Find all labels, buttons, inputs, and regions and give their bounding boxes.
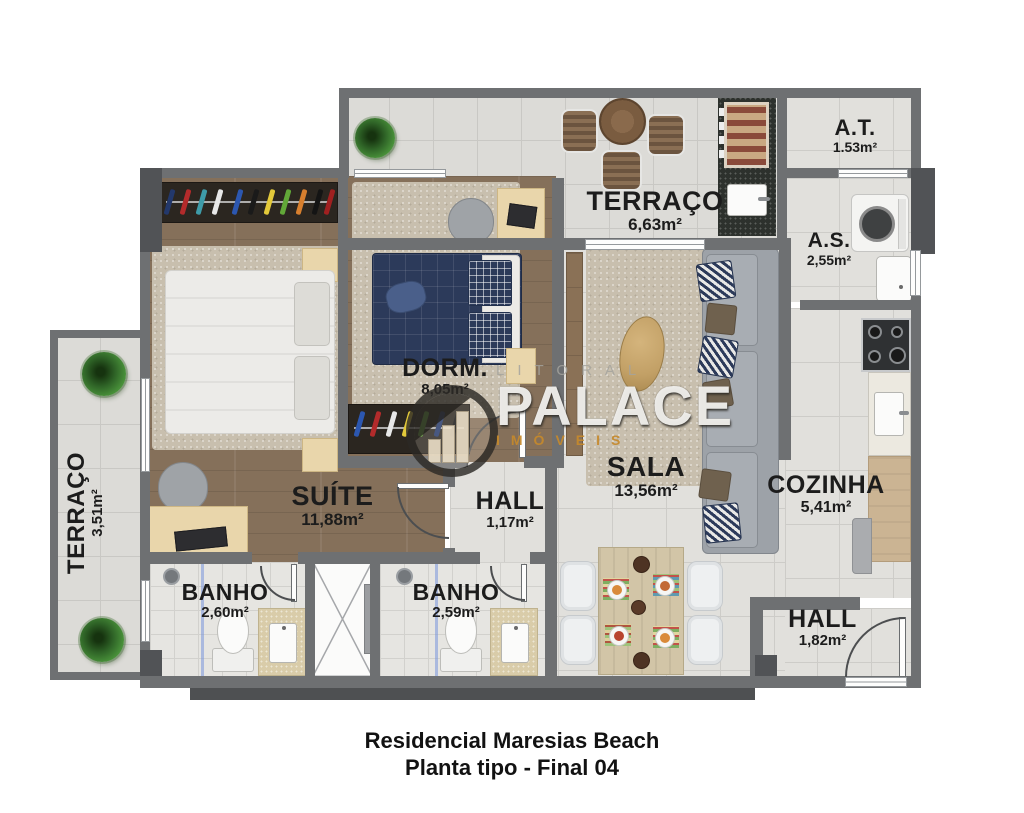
dorm-closet [348,404,470,454]
wall [50,672,142,680]
clothes-item [418,411,430,437]
food [614,631,624,641]
clothes-item [402,411,414,437]
window [838,169,908,178]
room-label-terraco-left: TERRAÇO 3,51m² [64,428,128,598]
room-label-suite: SUÍTE 11,88m² [270,482,395,531]
room-label-as: A.S. 2,55m² [770,230,888,269]
entry-threshold [845,677,907,687]
burner [889,347,906,364]
plant-icon [355,118,395,158]
sofa-pillow [702,378,734,410]
room-label-at: A.T. 1.53m² [795,116,915,156]
kitchen-sink [874,392,904,436]
wall [339,88,349,178]
terrace-round-table [599,98,646,145]
food [660,633,670,643]
suite-nightstand [302,438,338,472]
food [660,581,670,591]
wall [140,676,921,688]
suite-desk [148,506,248,556]
caption-line-2: Planta tipo - Final 04 [0,754,1024,781]
serving-pot [633,652,650,669]
terrace-chair [561,109,598,153]
pillar [755,655,777,676]
plate [609,626,629,646]
plate [607,580,627,600]
wall [779,238,791,460]
faucet-icon [899,411,909,415]
dining-chair [687,561,723,611]
wall [530,552,557,564]
wall [339,88,920,98]
drain-dot [899,285,903,289]
faucet-icon [514,626,518,630]
clothes-item [370,411,382,437]
fridge [852,518,872,574]
room-label-hall: HALL 1,17m² [455,488,565,532]
sliding-door [141,378,150,472]
closet-rail [166,201,330,203]
caption-line-1: Residencial Maresias Beach [0,727,1024,754]
terrace-chair [601,150,642,191]
dining-chair [560,615,596,665]
food [612,585,622,595]
window [585,239,705,250]
floor-plan-canvas: TERRAÇO 6,63m² A.T. 1.53m² A.S. 2,55m² D… [0,0,1024,813]
room-label-dorm: DORM. 8,05m² [385,355,505,399]
faucet-icon [282,626,286,630]
grill-knob [719,108,724,116]
clothes-item [434,411,446,437]
terrace-chair [647,114,685,156]
wall [140,168,348,178]
bathroom-sink [501,623,529,663]
window [141,580,150,642]
pillar [140,650,162,676]
slab-band [190,688,755,700]
sofa-pillow-chevron [697,335,739,379]
sofa-pillow [705,303,738,336]
serving-pot [633,556,650,573]
wall [800,300,911,310]
laptop [174,526,228,551]
burner [891,326,903,338]
window [910,250,921,296]
grill-knob [719,150,724,158]
pillar [140,168,162,252]
suite-closet [158,182,338,223]
room-label-sala: SALA 13,56m² [585,452,707,502]
clothes-item [354,411,366,437]
room-label-banho-suite: BANHO 2,60m² [165,580,285,622]
plan-caption: Residencial Maresias Beach Planta tipo -… [0,727,1024,781]
burner [868,325,882,339]
dorm-desk [497,188,545,244]
dining-chair [560,561,596,611]
washer-panel [898,199,906,249]
suite-pillow [294,282,330,346]
serving-pot [631,600,646,615]
window [354,169,446,178]
sofa-pillow-chevron [702,502,742,544]
grill-knob [719,122,724,130]
room-label-cozinha: COZINHA 5,41m² [756,472,896,517]
clothes-item [386,411,398,437]
wall [298,552,480,564]
dining-chair [687,615,723,665]
sala-tv-rack [566,252,583,456]
wall [50,330,142,338]
wall [552,178,564,468]
wall [338,178,348,468]
burner [868,350,881,363]
clothes-item [450,411,462,437]
room-label-banho-social: BANHO 2,59m² [396,580,516,622]
wall [370,564,380,676]
suite-desk-chair [158,462,208,512]
cooktop [861,318,911,372]
wall [140,552,252,564]
plate [655,628,675,648]
room-label-terraco-top: TERRAÇO 6,63m² [575,187,735,236]
suite-pillow [294,356,330,420]
pillar [911,168,935,254]
plant-icon [80,618,124,662]
sofa-pillow-chevron [696,260,737,303]
plant-icon [82,352,126,396]
dorm-pillow [468,260,512,306]
wall [50,330,58,680]
bathroom-sink [269,623,297,663]
laptop [507,203,538,229]
faucet-icon [758,197,770,201]
elevator [313,562,372,676]
room-label-hall-entrada: HALL 1,82m² [765,606,880,650]
wall [524,456,564,468]
plate [655,576,675,596]
grill [724,102,769,168]
dining-table [598,547,684,675]
grill-knob [719,136,724,144]
wall [305,564,315,676]
dorm-nightstand [506,348,536,384]
